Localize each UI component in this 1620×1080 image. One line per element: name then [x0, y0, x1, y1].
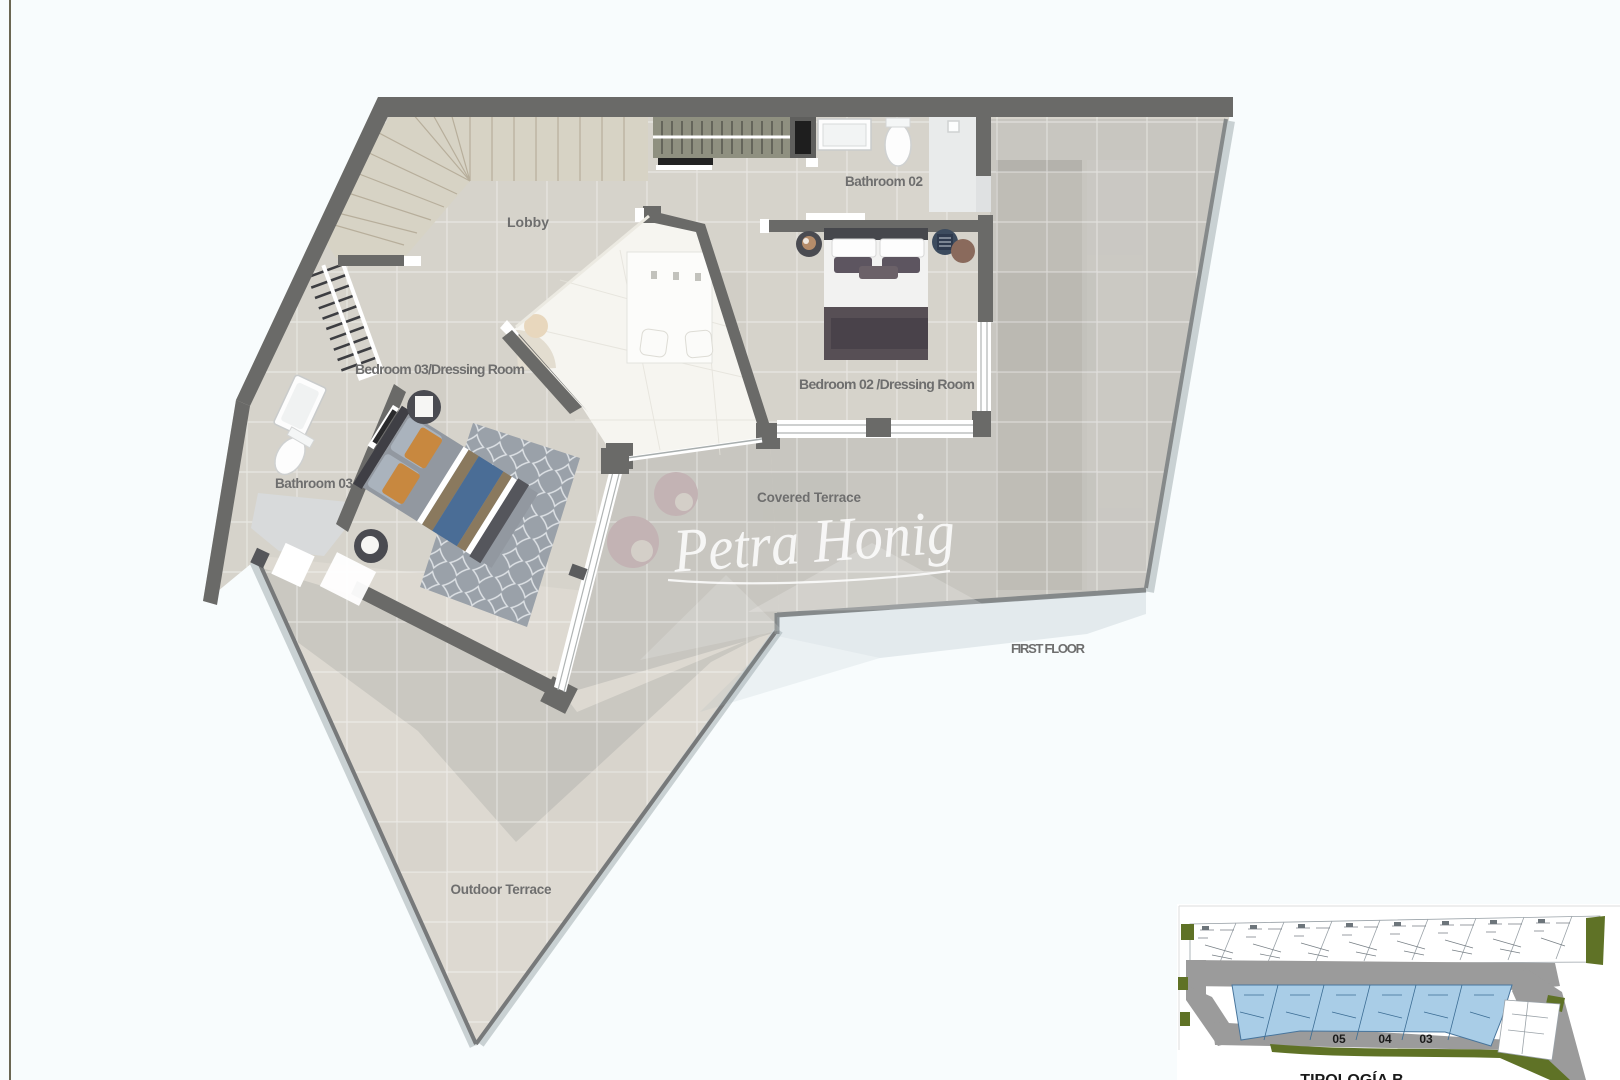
svg-text:Lobby: Lobby — [507, 214, 549, 230]
svg-text:Bathroom 02: Bathroom 02 — [845, 174, 923, 189]
svg-text:Bathroom 03: Bathroom 03 — [275, 476, 353, 491]
svg-text:Outdoor Terrace: Outdoor Terrace — [451, 882, 552, 897]
svg-text:04: 04 — [1378, 1032, 1392, 1046]
svg-text:Covered Terrace: Covered Terrace — [757, 490, 861, 505]
svg-text:FIRST FLOOR: FIRST FLOOR — [1011, 641, 1086, 656]
svg-text:TIPOLOGÍA B: TIPOLOGÍA B — [1300, 1070, 1403, 1080]
svg-text:Bedroom 03/Dressing Room: Bedroom 03/Dressing Room — [355, 361, 525, 377]
svg-text:03: 03 — [1419, 1032, 1433, 1046]
svg-text:Bedroom 02 /Dressing Room: Bedroom 02 /Dressing Room — [799, 376, 975, 392]
svg-text:05: 05 — [1332, 1032, 1346, 1046]
